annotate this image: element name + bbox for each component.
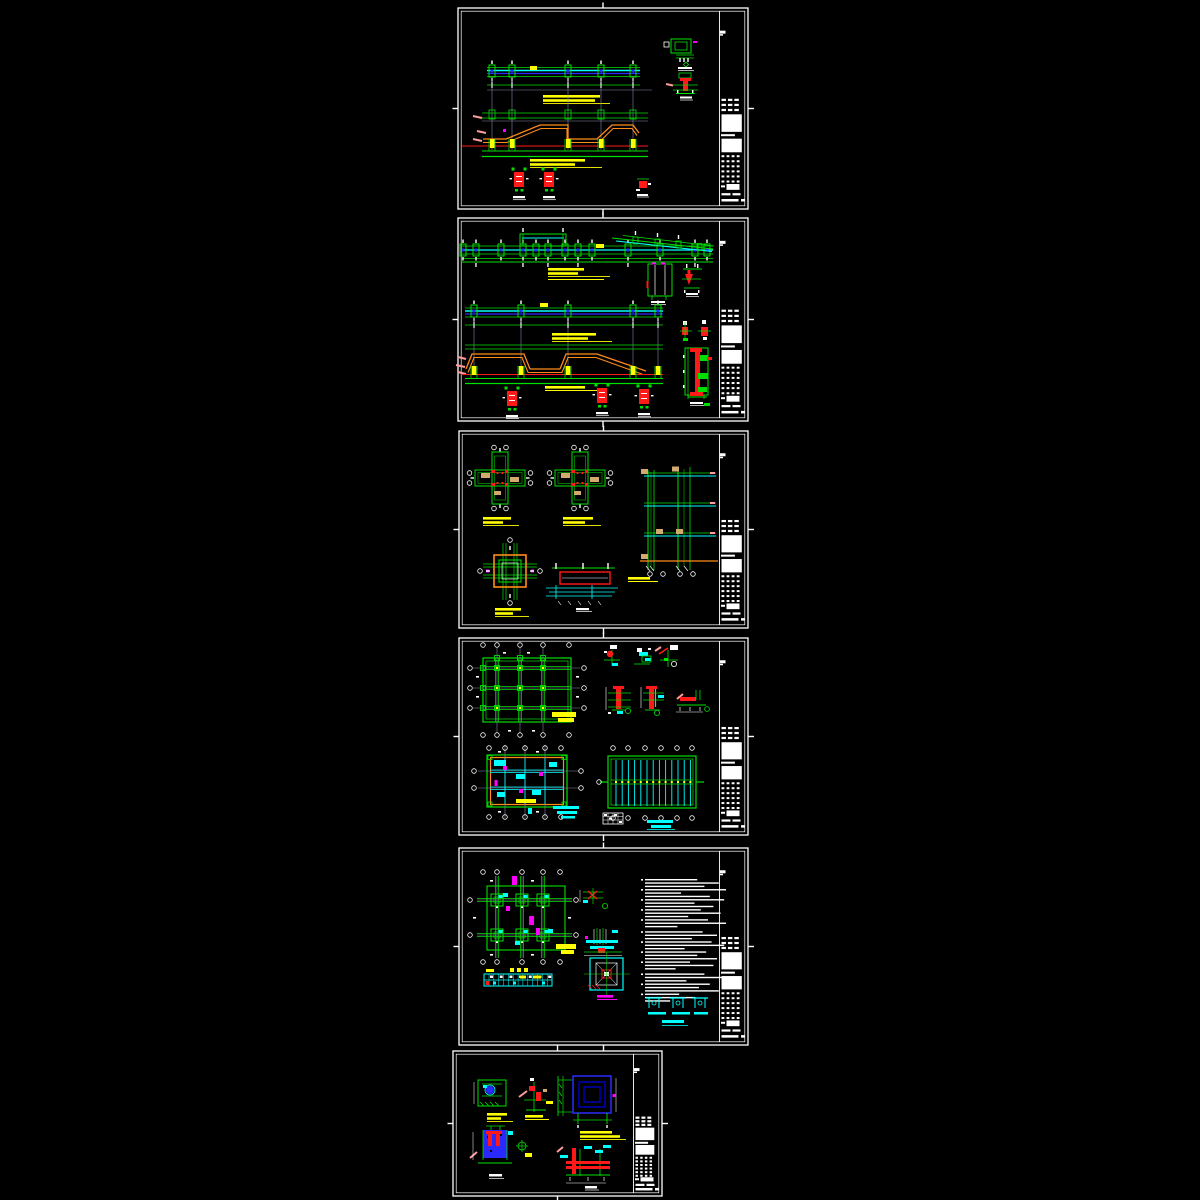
axis-bubble [478,569,483,574]
drawing-content [467,445,718,616]
text-annotation [552,333,612,342]
axis-bubble [574,933,579,938]
axis-bubble [481,733,486,738]
drawing-content [462,39,698,200]
beam-section-detail [635,385,654,417]
text-annotation [597,995,617,1000]
axis-bubble [518,733,523,738]
axis-bubble [582,666,587,671]
drawing-content [468,643,710,830]
axis-bubble [518,643,523,648]
title-block [720,434,746,625]
beam-section-detail [503,387,522,419]
sheet-1-beam-elevation-and-sections-sheet[interactable] [453,3,755,216]
axis-bubble [541,960,546,965]
text-annotation [525,1115,549,1120]
sheet-frame [453,3,755,216]
axis-bubble [558,960,563,965]
axis-bubble [643,816,648,821]
axis-bubble [690,816,695,821]
sheet-4-framing-plans-and-connection-details-sheet[interactable] [454,633,755,842]
axis-bubble [487,746,492,751]
beam-section-detail [593,384,612,416]
axis-bubble [468,686,473,691]
sheet-5-foundation-plan-footing-details-and-general-notes-sheet[interactable] [454,843,755,1052]
axis-bubble [481,643,486,648]
axis-bubble [541,643,546,648]
title-block [720,221,746,418]
axis-bubble [468,666,473,671]
axis-bubble [558,870,563,875]
axis-bubble [678,572,683,577]
column-cross-section-detail [467,445,533,511]
drawing-sheets-svg [0,0,1200,1200]
axis-bubble [675,746,680,751]
axis-bubble [508,601,513,606]
text-annotation [563,517,601,526]
axis-bubble [472,769,477,774]
sheet-frame [454,426,755,635]
axis-bubble [661,572,666,577]
title-block [720,641,746,832]
axis-bubble [567,643,572,648]
axis-bubble [690,746,695,751]
axis-bubble [468,706,473,711]
axis-bubble [559,746,564,751]
text-annotation [483,517,519,526]
beam-section-detail [510,168,529,200]
axis-bubble [675,816,680,821]
axis-bubble [567,733,572,738]
text-annotation [628,577,658,582]
text-annotation [530,159,602,168]
axis-bubble [520,960,525,965]
axis-bubble [468,933,473,938]
axis-bubble [468,898,473,903]
axis-bubble [495,960,500,965]
axis-bubble [659,746,664,751]
text-annotation [487,1113,513,1122]
axis-bubble [574,898,579,903]
axis-bubble [481,960,486,965]
cad-preview-canvas [0,0,1200,1200]
axis-bubble [508,538,513,543]
axis-bubble [582,686,587,691]
axis-bubble [582,706,587,711]
text-annotation [495,608,529,617]
general-notes-text [641,879,726,1002]
title-block [720,851,746,1042]
text-annotation [548,268,610,277]
axis-bubble [487,815,492,820]
axis-bubble [541,733,546,738]
sheet-6-footing-and-base-details-sheet[interactable] [448,1046,669,1200]
axis-bubble [495,870,500,875]
axis-bubble [648,572,653,577]
axis-bubble [541,870,546,875]
title-block [634,1054,660,1193]
axis-bubble [691,572,696,577]
title-block [720,11,746,206]
axis-bubble [643,746,648,751]
axis-bubble [481,870,486,875]
text-annotation [543,95,610,104]
axis-bubble [611,746,616,751]
axis-bubble [520,870,525,875]
axis-bubble [495,733,500,738]
axis-bubble [495,643,500,648]
axis-bubble [626,816,631,821]
axis-bubble [626,746,631,751]
beam-section-detail [540,168,559,200]
drawing-content [470,1076,626,1190]
sheet-2-long-beam-elevations-and-details-sheet[interactable] [453,213,755,428]
axis-bubble [538,569,543,574]
drawing-content [456,228,714,419]
column-cross-section-detail [547,445,613,511]
drawing-content [468,870,726,1026]
axis-bubble [472,786,477,791]
sheet-3-column-cross-sections-and-frame-elevation-sheet[interactable] [454,426,755,635]
axis-bubble [659,816,664,821]
text-annotation [580,1131,626,1140]
